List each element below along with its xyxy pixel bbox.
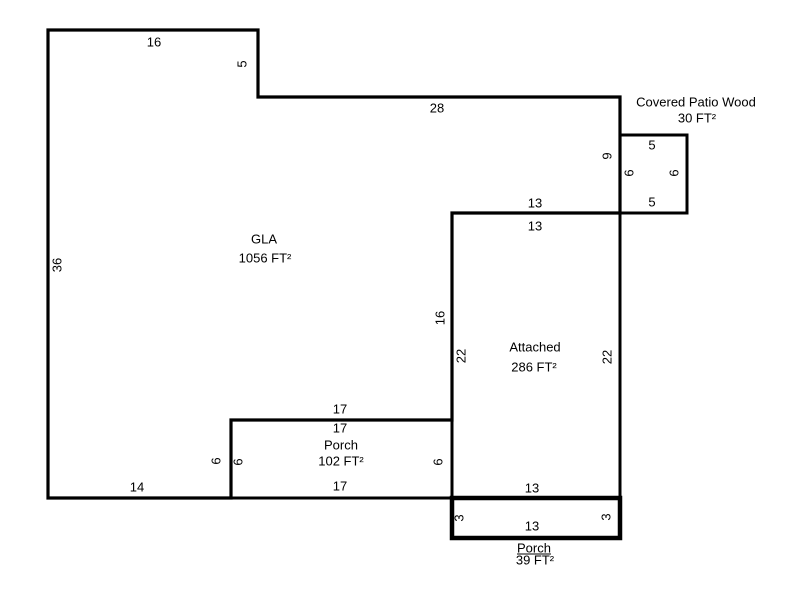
dim-gla-right: 9 — [601, 152, 614, 159]
dim-porch-left-inner: 6 — [232, 458, 245, 465]
dim-porch-small-right: 3 — [600, 513, 613, 520]
dim-gla-left: 36 — [51, 258, 64, 272]
area-label-porch-main: Porch — [324, 439, 358, 452]
area-sqft-covered-patio: 30 FT² — [678, 112, 716, 125]
dim-attached-top-inner: 13 — [528, 220, 542, 233]
floor-plan-lines — [0, 0, 800, 600]
area-sqft-porch-small: 39 FT² — [516, 554, 554, 567]
dim-porch-right: 6 — [432, 458, 445, 465]
dim-porch-left-outer: 6 — [210, 457, 223, 464]
area-label-covered-patio: Covered Patio Wood — [636, 96, 756, 109]
dim-attached-left: 22 — [455, 349, 468, 363]
area-sqft-gla: 1056 FT² — [239, 252, 292, 265]
dim-attached-top-outer: 13 — [528, 197, 542, 210]
dim-porch-small-inner: 13 — [525, 520, 539, 533]
dim-gla-notch: 5 — [236, 60, 249, 67]
dim-porch-top-inner: 17 — [333, 422, 347, 435]
attached-rect — [452, 213, 620, 498]
dim-attached-right: 22 — [601, 350, 614, 364]
area-sqft-attached: 286 FT² — [511, 361, 557, 374]
dim-porch-small-left: 3 — [453, 514, 466, 521]
dim-patio-bottom: 5 — [648, 196, 655, 209]
area-label-gla: GLA — [251, 233, 277, 246]
dim-attached-bottom: 13 — [525, 482, 539, 495]
dim-gla-bottom: 14 — [130, 481, 144, 494]
dim-gla-upper: 28 — [430, 102, 444, 115]
dim-gla-top: 16 — [147, 36, 161, 49]
dim-patio-top: 5 — [648, 139, 655, 152]
dim-gla-inner-right: 16 — [434, 311, 447, 325]
floor-plan-sketch: GLA 1056 FT² 16 5 28 36 9 16 14 Covered … — [0, 0, 800, 600]
dim-patio-right: 6 — [668, 169, 681, 176]
area-label-attached: Attached — [509, 341, 560, 354]
dim-porch-top-outer: 17 — [333, 403, 347, 416]
dim-porch-bottom: 17 — [333, 480, 347, 493]
area-sqft-porch-main: 102 FT² — [318, 455, 364, 468]
dim-patio-left: 6 — [623, 169, 636, 176]
